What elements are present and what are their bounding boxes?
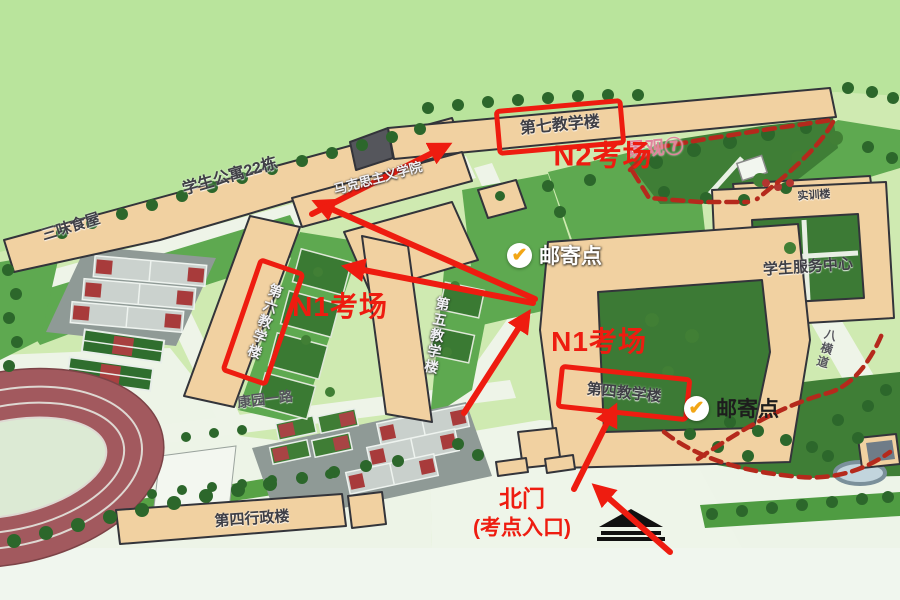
mail-point-west-label: 邮寄点 — [539, 240, 602, 270]
north-gate-line2: (考点入口) — [473, 514, 571, 541]
label-n1-exam-room-east: N1考场 — [551, 328, 647, 356]
check-icon: ✔ — [684, 396, 709, 421]
label-n2-exam-room: N2考场 — [553, 143, 652, 172]
north-gate-line1: 北门 — [473, 484, 571, 514]
label-training-bldg: 实训楼 — [797, 189, 831, 202]
mail-point-east-label: 邮寄点 — [716, 393, 779, 423]
north-gate-label: 北门 (考点入口) — [473, 484, 571, 541]
gate-pad-1 — [496, 458, 528, 476]
check-icon: ✔ — [507, 243, 532, 268]
building-admin-annex — [348, 492, 386, 528]
mail-point-west: ✔ 邮寄点 — [507, 240, 602, 270]
mail-point-east: ✔ 邮寄点 — [684, 393, 779, 423]
gate-pad-2 — [545, 455, 575, 473]
label-n1-exam-room-west: N1考场 — [292, 293, 388, 321]
campus-map: 三味食屋 学生公寓22栋 第七教学楼 马克思主义学院 第六教学楼 第五教学楼 实… — [0, 0, 900, 600]
